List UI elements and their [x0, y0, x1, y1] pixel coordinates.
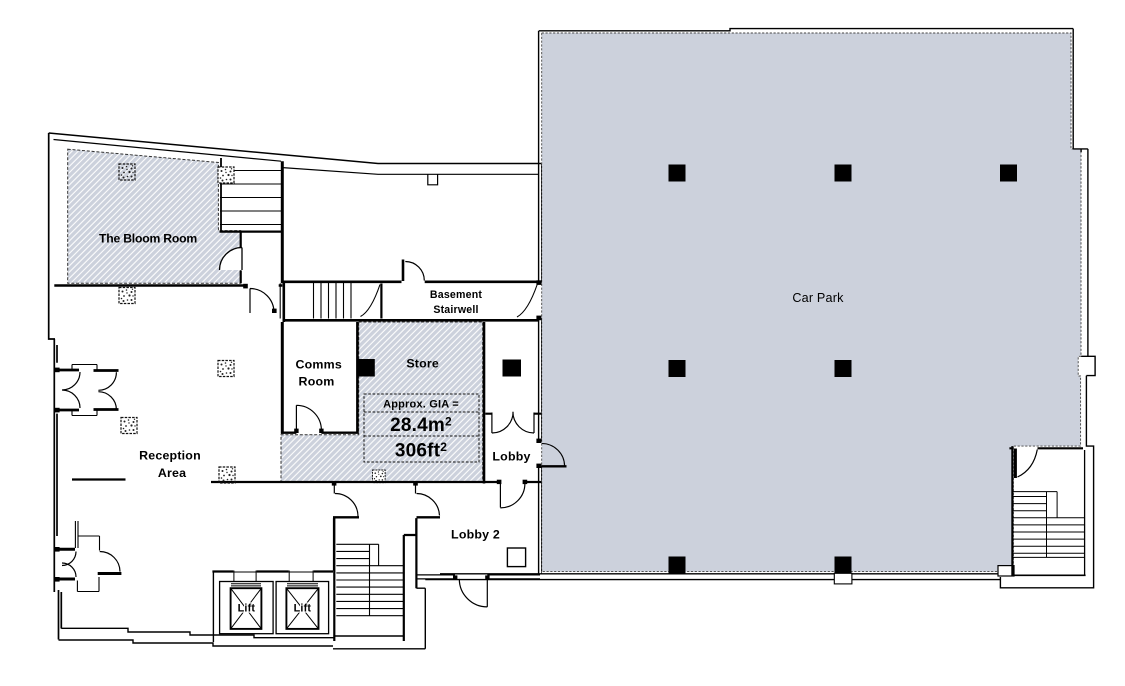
svg-text:Store: Store: [406, 357, 439, 371]
svg-text:Approx. GIA =: Approx. GIA =: [383, 399, 459, 411]
svg-text:Basement: Basement: [430, 289, 483, 301]
svg-text:Lobby 2: Lobby 2: [451, 528, 500, 542]
svg-text:Lift: Lift: [238, 603, 256, 615]
svg-text:Area: Area: [158, 466, 186, 480]
svg-text:Stairwell: Stairwell: [433, 304, 478, 316]
svg-text:Lift: Lift: [294, 603, 312, 615]
svg-text:Car Park: Car Park: [792, 291, 844, 305]
svg-text:Room: Room: [299, 375, 335, 389]
svg-text:28.4m2: 28.4m2: [390, 415, 452, 437]
svg-text:Reception: Reception: [139, 449, 201, 463]
svg-text:Comms: Comms: [295, 358, 341, 372]
svg-text:The Bloom Room: The Bloom Room: [99, 232, 197, 246]
svg-text:Lobby: Lobby: [492, 450, 530, 464]
svg-text:306ft2: 306ft2: [395, 440, 447, 462]
